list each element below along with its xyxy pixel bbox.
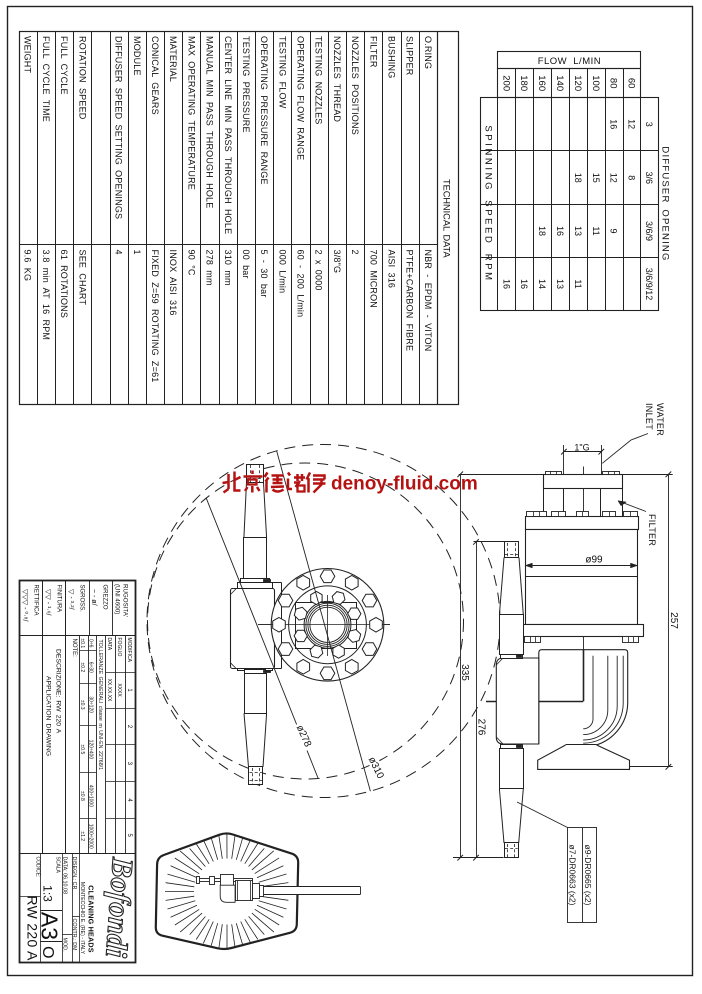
svg-text:MODULE: MODULE bbox=[132, 36, 142, 76]
svg-text:100: 100 bbox=[590, 75, 601, 91]
svg-text:61 ROTATIONS: 61 ROTATIONS bbox=[59, 250, 69, 319]
svg-text:SLIPPER: SLIPPER bbox=[405, 36, 415, 76]
svg-text:TESTING NOZZLES: TESTING NOZZLES bbox=[314, 36, 324, 125]
svg-text:CENTER LINE MIN PASS THROUGH H: CENTER LINE MIN PASS THROUGH HOLE bbox=[223, 36, 233, 234]
svg-text:90 °C: 90 °C bbox=[186, 250, 196, 276]
svg-text:AISI 316: AISI 316 bbox=[386, 250, 396, 289]
svg-text:TESTING PRESSURE: TESTING PRESSURE bbox=[241, 36, 251, 133]
svg-text:FULL CYCLE TIME: FULL CYCLE TIME bbox=[41, 36, 51, 122]
svg-text:120: 120 bbox=[572, 75, 583, 91]
svg-text:TECHNICAL DATA: TECHNICAL DATA bbox=[442, 179, 452, 258]
svg-text:OPERATING PRESSURE RANGE: OPERATING PRESSURE RANGE bbox=[259, 36, 269, 185]
svg-text:INLET: INLET bbox=[644, 403, 654, 430]
svg-text:ø7-DR0663 (x2): ø7-DR0663 (x2) bbox=[568, 845, 578, 906]
svg-text:8: 8 bbox=[627, 175, 637, 180]
svg-text:O.RING: O.RING bbox=[423, 36, 433, 69]
svg-text:TOLLERANZE GENERALI classe: TOLLERANZE GENERALI classe m UNI-EN 2276… bbox=[97, 640, 103, 771]
svg-text:~ - ø/: ~ - ø/ bbox=[90, 589, 97, 606]
svg-text:FINITURA: FINITURA bbox=[56, 585, 62, 613]
svg-text:FULL CYCLE: FULL CYCLE bbox=[59, 36, 69, 95]
svg-text:00 bar: 00 bar bbox=[241, 250, 251, 279]
svg-text:2 x 0000: 2 x 0000 bbox=[314, 250, 324, 291]
svg-text:15: 15 bbox=[591, 173, 601, 183]
svg-text:310 mm: 310 mm bbox=[223, 250, 233, 286]
svg-text:FILTER: FILTER bbox=[368, 36, 378, 68]
svg-text:3/8"G: 3/8"G bbox=[332, 250, 342, 274]
svg-text:INOX AISI 316: INOX AISI 316 bbox=[168, 250, 178, 316]
svg-text:16: 16 bbox=[609, 119, 619, 129]
svg-text:GREZZO: GREZZO bbox=[102, 585, 108, 610]
svg-text:6÷30: 6÷30 bbox=[88, 662, 94, 673]
svg-text:±0.1: ±0.1 bbox=[79, 638, 85, 648]
svg-text:CLEANING HEADS: CLEANING HEADS bbox=[87, 885, 96, 953]
svg-text:RUGOSITA': RUGOSITA' bbox=[121, 584, 128, 617]
svg-text:000 L/min: 000 L/min bbox=[277, 250, 287, 294]
svg-text:11: 11 bbox=[573, 279, 583, 288]
svg-text:▽ - ³·²/: ▽ - ³·²/ bbox=[67, 589, 74, 610]
svg-text:NBR - EPDM - VITON: NBR - EPDM - VITON bbox=[423, 250, 433, 352]
svg-text:60: 60 bbox=[626, 78, 637, 89]
svg-text:1:3: 1:3 bbox=[41, 885, 55, 902]
svg-text:BUSHING: BUSHING bbox=[386, 36, 396, 78]
svg-text:3/6: 3/6 bbox=[644, 172, 654, 185]
svg-text:9.6 KG: 9.6 KG bbox=[23, 250, 33, 282]
svg-text:13: 13 bbox=[555, 279, 565, 289]
svg-text:60 - 200 L/min: 60 - 200 L/min bbox=[296, 250, 306, 318]
svg-text:13: 13 bbox=[573, 226, 583, 236]
svg-text:SCALA: SCALA bbox=[55, 857, 61, 874]
svg-text:SGROSS.: SGROSS. bbox=[79, 585, 85, 613]
svg-text:DATA: 06.10.08: DATA: 06.10.08 bbox=[62, 857, 68, 895]
svg-text:3/6/9: 3/6/9 bbox=[644, 221, 654, 241]
svg-text:PTFE+CARBON FIBRE: PTFE+CARBON FIBRE bbox=[405, 250, 415, 352]
svg-text:(UNI 4600): (UNI 4600) bbox=[114, 584, 121, 614]
svg-text:160: 160 bbox=[536, 75, 547, 91]
svg-text:NOTE:: NOTE: bbox=[71, 639, 77, 658]
svg-text:NOZZLES THREAD: NOZZLES THREAD bbox=[332, 36, 342, 122]
svg-text:OPERATING FLOW RANGE: OPERATING FLOW RANGE bbox=[296, 36, 306, 160]
svg-text:FILTER: FILTER bbox=[647, 514, 657, 546]
svg-text:MATERIAL: MATERIAL bbox=[168, 36, 178, 82]
svg-text:DESCRIZIONE: RW 220 A: DESCRIZIONE: RW 220 A bbox=[55, 649, 62, 734]
svg-text:APPLICATION DRAWING: APPLICATION DRAWING bbox=[45, 676, 52, 756]
svg-text:700 MICRON: 700 MICRON bbox=[368, 250, 378, 309]
svg-text:200: 200 bbox=[500, 75, 511, 91]
svg-text:FOGLIO: FOGLIO bbox=[116, 638, 122, 657]
svg-text:18: 18 bbox=[537, 226, 547, 236]
svg-text:MODIFICA: MODIFICA bbox=[126, 638, 132, 663]
svg-text:SPINNING SPEED RPM: SPINNING SPEED RPM bbox=[482, 125, 493, 282]
svg-text:TESTING FLOW: TESTING FLOW bbox=[277, 36, 287, 109]
svg-text:WATER: WATER bbox=[655, 403, 665, 436]
svg-text:DIFFUSER SPEED SETTING OPENING: DIFFUSER SPEED SETTING OPENINGS bbox=[114, 36, 124, 219]
svg-text:FIXED Z=59 ROTATING Z=61: FIXED Z=59 ROTATING Z=61 bbox=[150, 250, 160, 383]
svg-text:CODICE:: CODICE: bbox=[35, 857, 41, 878]
svg-text:XX.XX.XX: XX.XX.XX bbox=[106, 679, 112, 702]
svg-text:±0.8: ±0.8 bbox=[79, 791, 85, 801]
svg-text:±0.5: ±0.5 bbox=[79, 745, 85, 755]
svg-text:▽▽ - ¹·⁶/: ▽▽ - ¹·⁶/ bbox=[44, 589, 51, 616]
svg-text:4: 4 bbox=[114, 250, 124, 255]
svg-text:ø99: ø99 bbox=[585, 555, 603, 566]
svg-text:16: 16 bbox=[501, 279, 511, 289]
svg-text:11: 11 bbox=[591, 226, 601, 235]
svg-text:denoy-fluid.com: denoy-fluid.com bbox=[331, 474, 478, 495]
svg-text:▽▽▽ - ⁰·⁸/: ▽▽▽ - ⁰·⁸/ bbox=[21, 589, 29, 621]
svg-text:DATA: DATA bbox=[106, 638, 112, 651]
svg-text:12: 12 bbox=[609, 173, 619, 183]
svg-text:SEE CHART: SEE CHART bbox=[77, 250, 87, 306]
svg-text:O: O bbox=[39, 946, 56, 958]
svg-text:3.8 min AT 16 RPM: 3.8 min AT 16 RPM bbox=[41, 250, 51, 341]
svg-text:278 mm: 278 mm bbox=[205, 250, 215, 286]
svg-text:16: 16 bbox=[519, 279, 529, 289]
svg-text:335: 335 bbox=[459, 664, 470, 681]
svg-text:±0.3: ±0.3 bbox=[79, 700, 85, 710]
svg-text:180: 180 bbox=[518, 75, 529, 91]
svg-text:MAX OPERATING TEMPERATURE: MAX OPERATING TEMPERATURE bbox=[186, 36, 196, 190]
svg-text:5 - 30 bar: 5 - 30 bar bbox=[259, 250, 269, 298]
svg-text:30÷120: 30÷120 bbox=[88, 696, 94, 713]
svg-text:12: 12 bbox=[627, 119, 637, 129]
svg-text:RW 220 A: RW 220 A bbox=[25, 895, 41, 961]
svg-text:9: 9 bbox=[609, 228, 619, 233]
svg-text:DISEGN.: CR: DISEGN.: CR bbox=[71, 857, 77, 890]
svg-text:14: 14 bbox=[537, 279, 547, 289]
svg-text:NOZZLES POSITIONS: NOZZLES POSITIONS bbox=[350, 36, 360, 135]
svg-text:FLOW L/MIN: FLOW L/MIN bbox=[538, 56, 601, 67]
svg-text:257: 257 bbox=[668, 612, 679, 629]
svg-text:1000÷2000: 1000÷2000 bbox=[88, 824, 94, 849]
svg-text:ø9-DR0665 (x2): ø9-DR0665 (x2) bbox=[583, 845, 593, 906]
svg-text:16: 16 bbox=[555, 226, 565, 236]
svg-text:CONICAL GEARS: CONICAL GEARS bbox=[150, 36, 160, 115]
svg-text:3: 3 bbox=[644, 122, 654, 127]
svg-text:DIFFUSER OPENING: DIFFUSER OPENING bbox=[660, 146, 671, 261]
svg-text:140: 140 bbox=[554, 75, 565, 91]
svg-text:3/6/9/12: 3/6/9/12 bbox=[644, 268, 654, 301]
svg-text:MANUAL MIN PASS THROUGH HOLE: MANUAL MIN PASS THROUGH HOLE bbox=[205, 36, 215, 208]
svg-text:1: 1 bbox=[132, 250, 142, 255]
svg-text:80: 80 bbox=[608, 78, 619, 89]
svg-text:WEIGHT: WEIGHT bbox=[23, 36, 33, 73]
svg-text:XXXX: XXXX bbox=[116, 683, 122, 697]
svg-text:±1.2: ±1.2 bbox=[79, 831, 85, 841]
svg-text:RETTIFICA: RETTIFICA bbox=[33, 585, 39, 616]
svg-text:ROTATION SPEED: ROTATION SPEED bbox=[77, 36, 87, 120]
svg-text:0÷6: 0÷6 bbox=[88, 639, 94, 648]
svg-text:18: 18 bbox=[573, 173, 583, 183]
svg-text:2: 2 bbox=[350, 250, 360, 255]
svg-text:±0.2: ±0.2 bbox=[79, 662, 85, 672]
svg-text:120÷400: 120÷400 bbox=[88, 740, 94, 760]
svg-text:1"G: 1"G bbox=[574, 442, 589, 452]
svg-text:276: 276 bbox=[476, 719, 487, 736]
svg-text:400÷1000: 400÷1000 bbox=[88, 785, 94, 807]
